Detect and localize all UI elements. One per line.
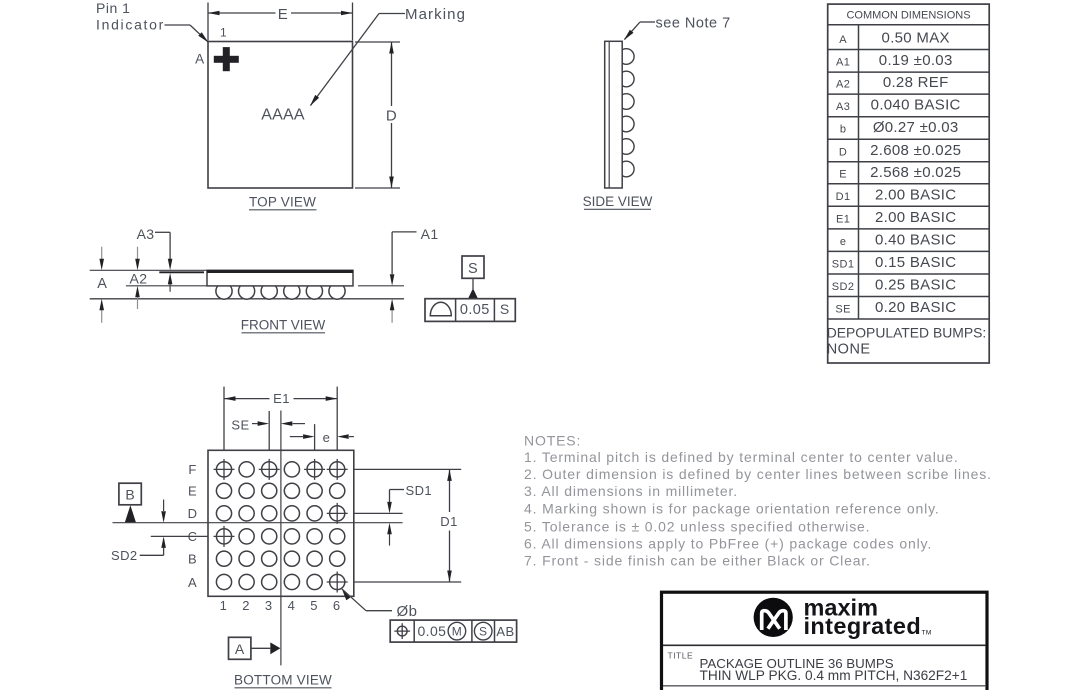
svg-text:Øb: Øb xyxy=(397,603,418,620)
svg-text:A2: A2 xyxy=(130,271,148,287)
svg-text:FRONT VIEW: FRONT VIEW xyxy=(241,318,326,333)
svg-text:SD2: SD2 xyxy=(832,281,855,293)
svg-text:2.568 ±0.025: 2.568 ±0.025 xyxy=(870,164,961,181)
svg-text:2. Outer dimension is defined: 2. Outer dimension is defined by center … xyxy=(524,466,992,482)
svg-text:4. Marking shown is for packag: 4. Marking shown is for package orientat… xyxy=(524,501,940,517)
svg-text:SD1: SD1 xyxy=(832,259,855,271)
svg-text:Ø0.27 ±0.03: Ø0.27 ±0.03 xyxy=(873,119,959,136)
svg-text:S: S xyxy=(468,261,478,277)
svg-text:A2: A2 xyxy=(836,79,850,91)
svg-text:NOTES:: NOTES: xyxy=(524,433,581,449)
svg-text:A: A xyxy=(188,575,197,590)
svg-text:SE: SE xyxy=(231,418,249,433)
svg-text:e: e xyxy=(323,430,331,445)
svg-text:AB: AB xyxy=(496,624,514,639)
svg-text:5. Tolerance is ± 0.02 unless: 5. Tolerance is ± 0.02 unless specified … xyxy=(524,518,870,534)
svg-text:2.00 BASIC: 2.00 BASIC xyxy=(875,186,956,203)
svg-text:A1: A1 xyxy=(421,226,439,242)
svg-text:A: A xyxy=(97,276,107,292)
svg-text:0.28 REF: 0.28 REF xyxy=(883,74,949,91)
svg-text:A3: A3 xyxy=(137,226,155,242)
svg-text:0.040 BASIC: 0.040 BASIC xyxy=(871,97,961,114)
svg-text:D: D xyxy=(188,506,198,521)
svg-text:SE: SE xyxy=(835,304,850,316)
svg-text:THIN WLP PKG. 0.4 mm PITCH, N3: THIN WLP PKG. 0.4 mm PITCH, N362F2+1 xyxy=(700,668,968,683)
svg-text:D: D xyxy=(386,108,397,125)
svg-text:0.25 BASIC: 0.25 BASIC xyxy=(875,277,956,294)
svg-text:3. All dimensions in millimete: 3. All dimensions in millimeter. xyxy=(524,483,738,499)
svg-text:3: 3 xyxy=(265,598,273,613)
svg-text:2.608 ±0.025: 2.608 ±0.025 xyxy=(870,142,961,159)
svg-text:TOP VIEW: TOP VIEW xyxy=(249,195,316,210)
svg-text:b: b xyxy=(840,124,847,136)
svg-text:e: e xyxy=(840,236,847,248)
svg-text:F: F xyxy=(188,462,196,477)
svg-text:0.20 BASIC: 0.20 BASIC xyxy=(875,299,956,316)
svg-text:0.50 MAX: 0.50 MAX xyxy=(882,30,950,47)
svg-text:E: E xyxy=(278,6,288,23)
svg-text:2.00 BASIC: 2.00 BASIC xyxy=(875,209,956,226)
svg-text:A: A xyxy=(839,34,847,46)
svg-text:D: D xyxy=(839,146,847,158)
svg-text:0.15 BASIC: 0.15 BASIC xyxy=(875,254,956,271)
svg-text:4: 4 xyxy=(288,598,296,613)
svg-text:S: S xyxy=(500,301,510,317)
svg-text:7. Front - side finish can be: 7. Front - side finish can be either Bla… xyxy=(524,553,871,569)
svg-text:0.40 BASIC: 0.40 BASIC xyxy=(875,231,956,248)
svg-text:SIDE VIEW: SIDE VIEW xyxy=(583,194,653,209)
svg-text:1: 1 xyxy=(220,598,228,613)
svg-text:5: 5 xyxy=(310,598,318,613)
svg-text:B: B xyxy=(125,487,135,503)
svg-text:E1: E1 xyxy=(273,391,290,406)
svg-text:A1: A1 xyxy=(836,57,850,69)
svg-text:Pin 1: Pin 1 xyxy=(96,0,130,16)
svg-text:1: 1 xyxy=(220,26,227,40)
svg-text:integrated: integrated xyxy=(804,613,922,639)
svg-text:M: M xyxy=(452,625,462,639)
svg-text:6: 6 xyxy=(333,598,341,613)
svg-text:S: S xyxy=(479,625,487,639)
svg-text:0.19 ±0.03: 0.19 ±0.03 xyxy=(879,52,953,69)
svg-text:A: A xyxy=(195,52,204,67)
svg-text:NONE: NONE xyxy=(827,342,871,358)
svg-text:E: E xyxy=(839,168,847,180)
svg-text:A: A xyxy=(235,641,245,657)
svg-text:AAAA: AAAA xyxy=(261,107,305,124)
svg-text:1. Terminal pitch is defined b: 1. Terminal pitch is defined by terminal… xyxy=(524,449,959,465)
svg-text:see Note 7: see Note 7 xyxy=(656,16,731,32)
svg-text:BOTTOM VIEW: BOTTOM VIEW xyxy=(234,673,332,688)
svg-text:E1: E1 xyxy=(836,213,850,225)
svg-text:TITLE: TITLE xyxy=(668,651,694,661)
svg-text:SD2: SD2 xyxy=(111,548,138,563)
svg-text:Marking: Marking xyxy=(405,6,466,23)
svg-text:D1: D1 xyxy=(440,514,457,529)
svg-text:D1: D1 xyxy=(836,191,851,203)
svg-text:B: B xyxy=(188,552,197,567)
svg-text:Indicator: Indicator xyxy=(96,17,165,33)
svg-text:SD1: SD1 xyxy=(406,483,433,498)
svg-text:COMMON DIMENSIONS: COMMON DIMENSIONS xyxy=(846,10,970,22)
svg-text:0.05: 0.05 xyxy=(418,623,447,639)
svg-text:2: 2 xyxy=(242,598,250,613)
svg-text:0.05: 0.05 xyxy=(460,302,490,318)
svg-text:E: E xyxy=(188,484,197,499)
svg-text:A3: A3 xyxy=(836,101,850,113)
svg-text:TM: TM xyxy=(922,630,932,637)
svg-text:6. All dimensions apply to PbF: 6. All dimensions apply to PbFree (+) pa… xyxy=(524,535,932,551)
svg-text:DEPOPULATED BUMPS:: DEPOPULATED BUMPS: xyxy=(827,325,987,341)
